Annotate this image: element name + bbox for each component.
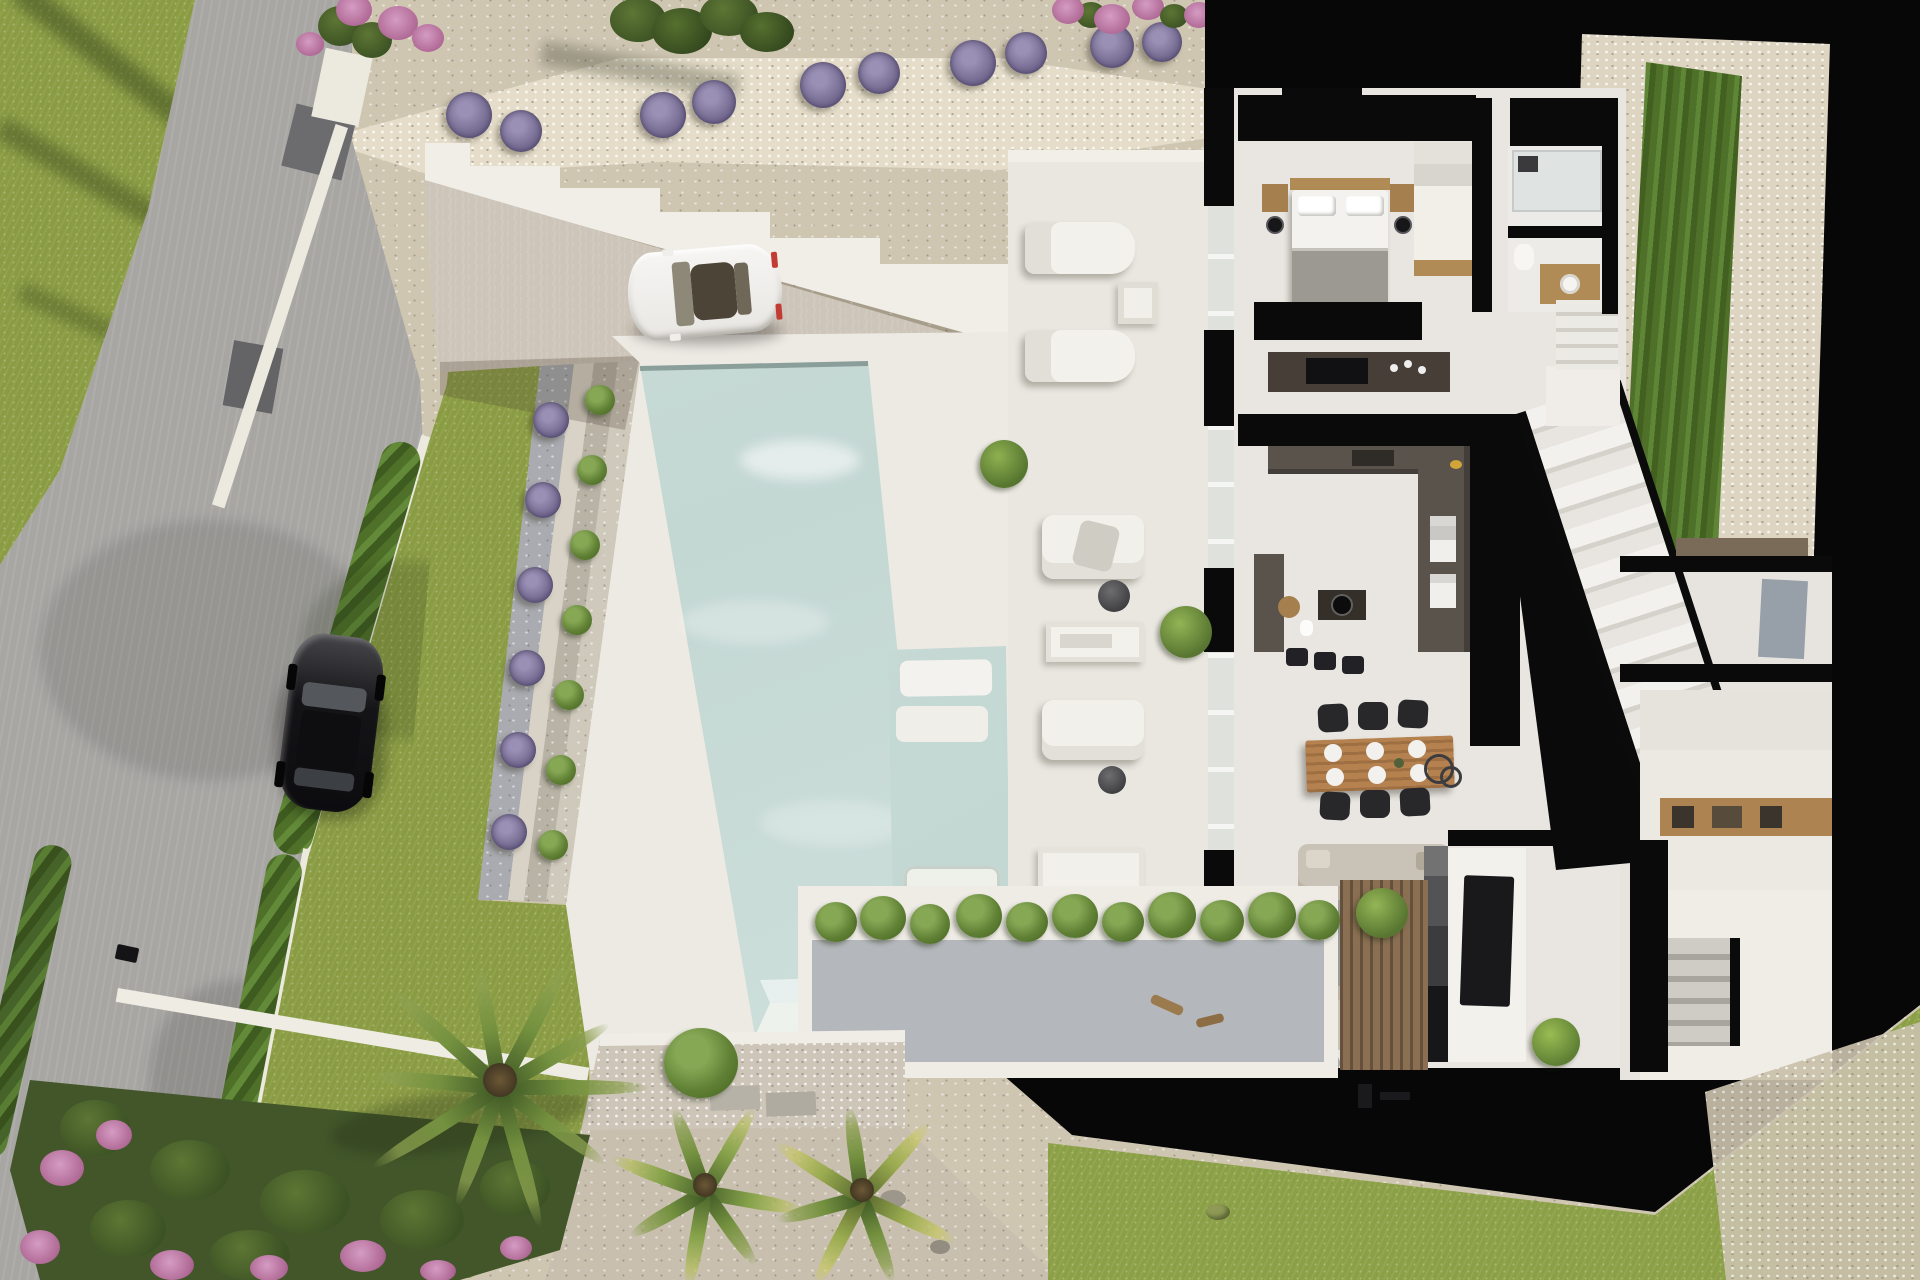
car-taillight	[775, 303, 782, 319]
dishes	[1404, 360, 1412, 368]
dishes	[1418, 366, 1426, 374]
toilet	[1514, 244, 1534, 270]
sun-lounger	[1025, 222, 1135, 274]
white-sports-car	[624, 241, 785, 342]
bar-stool	[1342, 656, 1364, 674]
shower-mat	[1518, 156, 1538, 172]
bed-pillow	[1298, 196, 1336, 216]
wall	[1238, 414, 1520, 446]
car-taillight	[771, 252, 778, 268]
bedside-table	[1390, 184, 1416, 212]
oven	[1430, 574, 1456, 608]
wardrobe	[1414, 142, 1472, 260]
armchair	[1042, 700, 1144, 760]
side-table	[1118, 282, 1158, 324]
bedside-table	[1262, 184, 1288, 212]
potted-plant	[980, 440, 1028, 488]
wood-stool	[1278, 596, 1300, 618]
potted-plant	[1160, 606, 1212, 658]
dining-chair	[1397, 699, 1428, 729]
pouf	[1098, 766, 1126, 794]
aerial-villa-render	[0, 0, 1920, 1280]
indoor-plant	[1532, 1018, 1580, 1066]
wall	[1602, 98, 1618, 314]
decor-ring	[1440, 766, 1462, 788]
wall	[1620, 664, 1832, 682]
black-car	[275, 630, 388, 816]
basin	[1560, 274, 1580, 294]
plate	[1408, 740, 1426, 758]
console-table	[1046, 622, 1144, 662]
wall	[1282, 88, 1362, 133]
lemons	[1450, 460, 1462, 469]
cabinet-niche	[1660, 798, 1832, 836]
pool-infinity-wisp	[740, 440, 860, 480]
wall	[1254, 302, 1422, 340]
dishes	[1390, 364, 1398, 372]
deck-plant	[1356, 888, 1408, 938]
sun-lounger	[1025, 330, 1135, 382]
bottle	[1394, 758, 1404, 768]
in-pool-lounger	[900, 659, 993, 697]
bbq-tools	[1358, 1084, 1372, 1108]
wall	[1510, 98, 1614, 146]
kitchen-tall-units	[1268, 352, 1450, 392]
wall	[1448, 830, 1632, 846]
plate	[1366, 742, 1384, 760]
facade-wall	[1204, 88, 1238, 206]
dining-chair	[1319, 791, 1350, 821]
dining-chair	[1360, 790, 1390, 818]
bar-stool	[1314, 652, 1336, 670]
dining-chair	[1358, 702, 1388, 730]
hob-ring	[1333, 596, 1351, 614]
pool-wisp	[680, 600, 830, 644]
car-mirror	[662, 249, 674, 257]
pool-wisp	[760, 800, 910, 846]
bedside-lamp	[1396, 218, 1410, 232]
sofa-pillow	[1306, 850, 1330, 868]
wall	[1472, 98, 1492, 312]
terrace-curb	[1008, 150, 1208, 162]
court-bush	[664, 1028, 738, 1098]
car-roof-glass	[690, 261, 739, 321]
jug	[1300, 620, 1313, 636]
car-roof	[296, 709, 362, 772]
bathroom-partition	[1508, 226, 1602, 238]
wall	[1630, 840, 1668, 1072]
dining-chair	[1399, 787, 1430, 817]
boulder	[930, 1240, 950, 1254]
bbq-tools	[1380, 1092, 1410, 1100]
facade-wall	[1204, 330, 1238, 426]
lawn-rock	[1206, 1204, 1230, 1220]
appliance-screen	[1306, 358, 1368, 384]
in-pool-lounger	[896, 706, 988, 742]
car-mirror	[670, 333, 682, 341]
armchair	[1042, 515, 1144, 579]
wall	[1470, 446, 1520, 746]
bed-headboard	[1290, 178, 1390, 190]
bed-blanket	[1292, 248, 1388, 308]
stepping-stone	[766, 1091, 817, 1117]
plate	[1326, 768, 1344, 786]
door-mat	[1758, 579, 1808, 659]
bed-pillow	[1346, 196, 1384, 216]
plate	[1324, 744, 1342, 762]
kitchen-sink	[1352, 450, 1394, 466]
wall	[1620, 556, 1832, 572]
plate	[1368, 766, 1386, 784]
stair-landing	[1546, 366, 1620, 426]
oven	[1430, 516, 1456, 562]
tv	[1460, 875, 1515, 1007]
bedside-lamp	[1268, 218, 1282, 232]
wardrobe-niche	[1414, 260, 1472, 276]
dining-chair	[1317, 703, 1348, 733]
pouf	[1098, 580, 1130, 612]
bar-stool	[1286, 648, 1308, 666]
